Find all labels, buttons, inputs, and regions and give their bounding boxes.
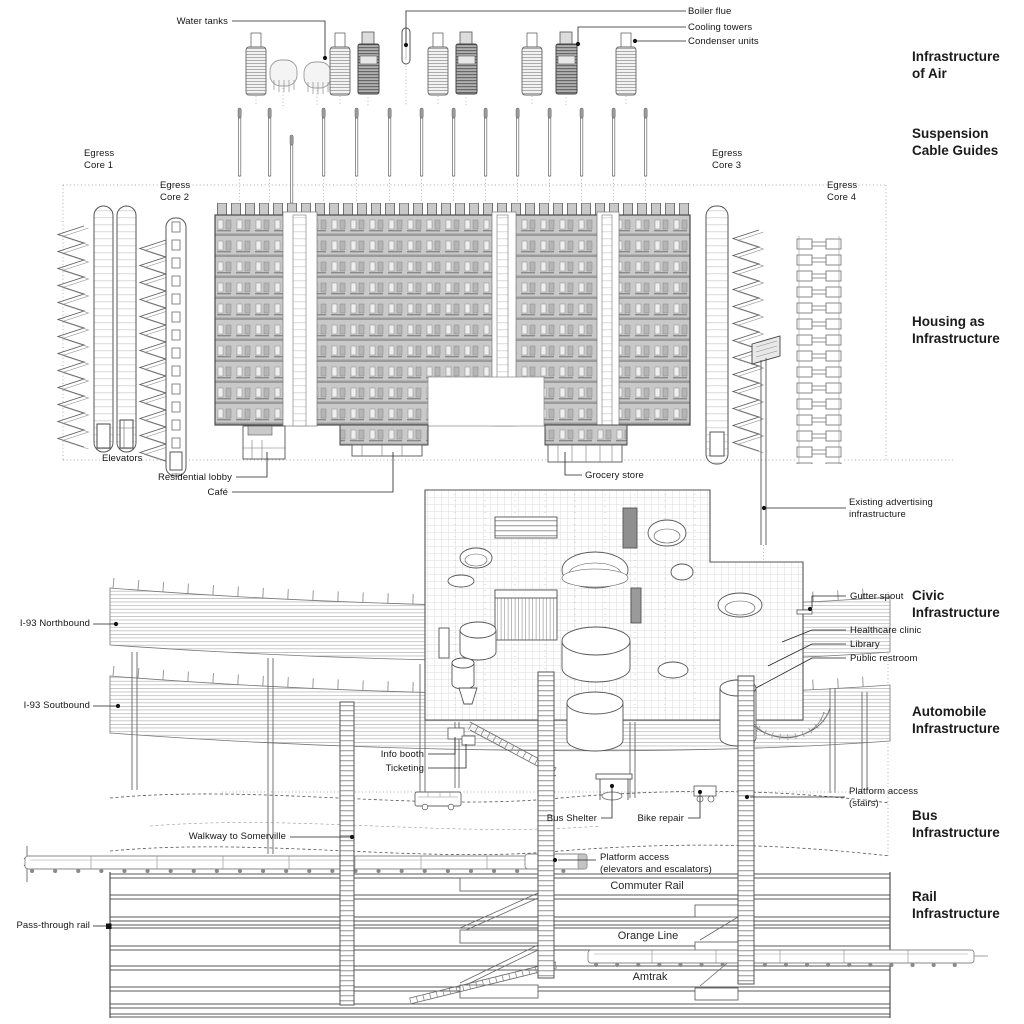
callout-egress-core-1: Egress Core 1 [84, 148, 114, 171]
section-automobile-infrastructure: Automobile Infrastructure [912, 703, 1000, 737]
rail-label-orange-line: Orange Line [611, 930, 686, 943]
callout-grocery-store: Grocery store [585, 470, 644, 482]
callout-gutter-spout: Gutter spout [850, 591, 903, 603]
egress-cores-left [58, 206, 186, 476]
busway-edge-lower [110, 845, 890, 856]
callout-public-restroom: Public restroom [850, 653, 918, 665]
commuter-train [25, 854, 587, 871]
callout-egress-core-4: Egress Core 4 [827, 180, 857, 203]
egress-core-3-stair [733, 230, 764, 453]
orange-line-train [588, 950, 988, 965]
egress-core-2-shaft [166, 218, 186, 476]
section-suspension-cable-guides: Suspension Cable Guides [912, 125, 998, 159]
callout-cooling-towers: Cooling towers [688, 22, 752, 34]
rail-label-amtrak: Amtrak [626, 971, 675, 984]
bike-repair-glyph [694, 786, 716, 802]
callout-i93-northbound: I-93 Northbound [20, 618, 90, 630]
callout-info-booth: Info booth [381, 749, 424, 761]
civic-platform [425, 490, 830, 798]
callout-existing-advertising: Existing advertising infrastructure [849, 497, 933, 520]
rail-label-commuter-rail: Commuter Rail [603, 880, 690, 893]
egress-core-4-units [796, 236, 842, 464]
callout-egress-core-3: Egress Core 3 [712, 148, 742, 171]
section-housing-as-infrastructure: Housing as Infrastructure [912, 313, 1000, 347]
elevator-escalator-shaft [538, 672, 554, 978]
callout-elevators: Elevators [102, 453, 143, 465]
section-rail-infrastructure: Rail Infrastructure [912, 888, 1000, 922]
elevator-shaft-2 [117, 206, 136, 452]
section-bus-infrastructure: Bus Infrastructure [912, 807, 1000, 841]
callout-library: Library [850, 639, 880, 651]
callout-healthcare-clinic: Healthcare clinic [850, 625, 921, 637]
bus-glyph [415, 792, 461, 810]
section-infrastructure-of-air: Infrastructure of Air [912, 48, 1000, 82]
grocery-storefront [548, 445, 622, 462]
bus-level [110, 774, 890, 856]
callout-cafe: Café [208, 487, 228, 499]
egress-core-1-stair [58, 226, 89, 449]
suspension-cable-guides [238, 108, 647, 203]
egress-cores-right [706, 206, 842, 464]
bus-shelter-glyph [596, 774, 632, 800]
walkway-shaft [340, 702, 354, 1005]
callout-i93-southbound: I-93 Soutbound [24, 700, 90, 712]
section-civic-infrastructure: Civic Infrastructure [912, 587, 1000, 621]
callout-pass-through-rail: Pass-through rail [16, 920, 90, 932]
callout-platform-access-elevators: Platform access (elevators and escalator… [600, 852, 712, 875]
callout-bus-shelter: Bus Shelter [547, 813, 597, 825]
callout-egress-core-2: Egress Core 2 [160, 180, 190, 203]
rail-level [24, 846, 988, 1018]
callout-platform-access-stairs: Platform access (stairs) [849, 786, 918, 809]
cafe-storefront [352, 445, 422, 456]
elevator-shaft-1 [94, 206, 113, 452]
housing-block [215, 203, 690, 462]
callout-boiler-flue: Boiler flue [688, 6, 731, 18]
callout-walkway-to-somerville: Walkway to Somerville [189, 831, 286, 843]
callout-water-tanks: Water tanks [177, 16, 228, 28]
stair-shaft [738, 676, 754, 984]
mechanical-towers [246, 28, 636, 106]
callout-ticketing: Ticketing [385, 763, 424, 775]
callout-residential-lobby: Residential lobby [158, 472, 232, 484]
callout-bike-repair: Bike repair [637, 813, 684, 825]
residential-lobby-storefront [243, 426, 285, 459]
callout-condenser-units: Condenser units [688, 36, 759, 48]
egress-core-3-shaft [706, 206, 728, 464]
